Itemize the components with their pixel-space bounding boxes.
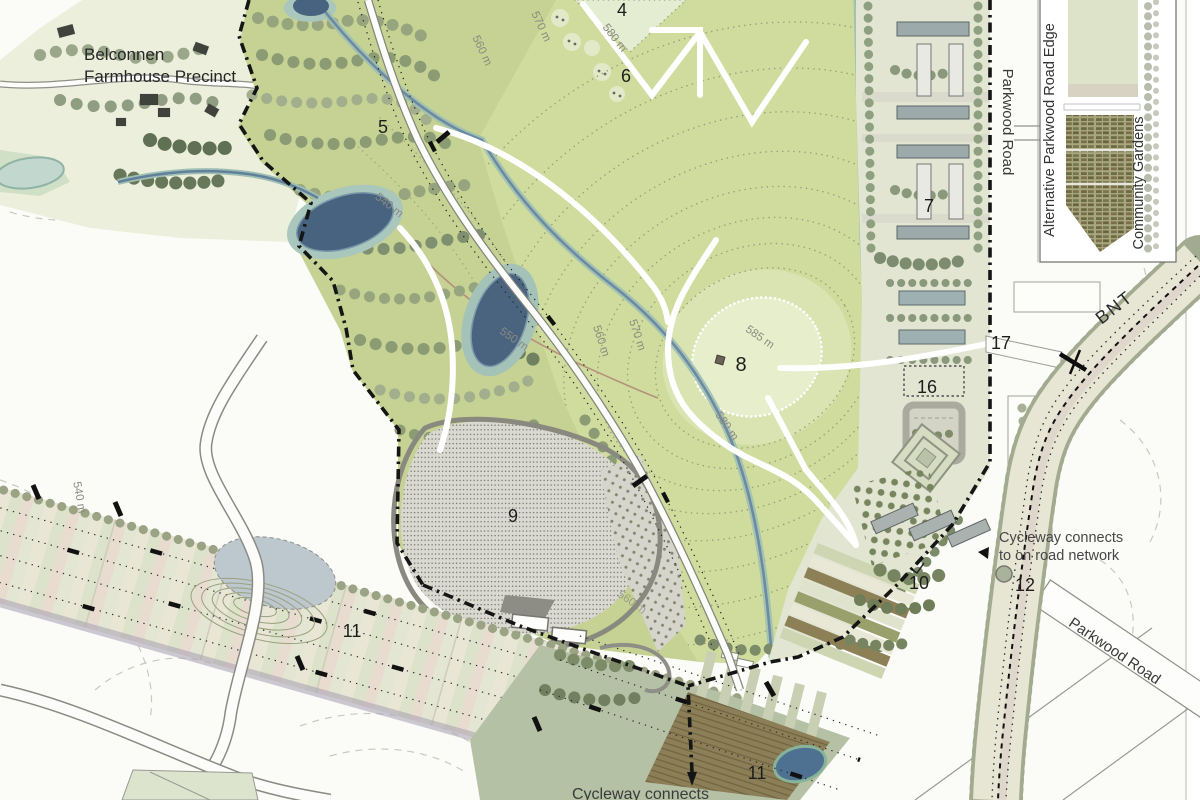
cycleway-note-line2: to on road network — [999, 548, 1120, 564]
trig-marker — [715, 355, 725, 365]
area-12-label: 12 — [1015, 575, 1035, 595]
cycleway-note-line1: Cycleway connects — [999, 530, 1123, 546]
area-11b-label: 11 — [748, 763, 767, 783]
legend-inset — [1040, 0, 1176, 262]
area-17-label: 17 — [991, 333, 1011, 353]
paddock-outline-1 — [1014, 282, 1100, 312]
masterplan-map: Belconnen Farmhouse Precinct 4 5 6 7 8 9… — [0, 0, 1200, 800]
node-12-marker — [996, 566, 1012, 582]
area-8-label: 8 — [735, 354, 746, 376]
area-4-label: 4 — [617, 0, 627, 20]
legend-community-gardens-label: Community Gardens — [1131, 117, 1147, 250]
parkwood-road-label-north: Parkwood Road — [999, 69, 1016, 176]
area-16-label: 16 — [917, 377, 937, 397]
cycleway-note-bottom: Cycleway connects — [572, 786, 709, 800]
area-10-label: 10 — [909, 573, 929, 593]
legend-alt-edge-label: Alternative Parkwood Road Edge — [1042, 23, 1058, 237]
map-canvas: Belconnen Farmhouse Precinct 4 5 6 7 8 9… — [0, 0, 1200, 800]
area-7-label: 7 — [924, 196, 934, 216]
green-wedge-field — [122, 770, 258, 800]
belconnen-label-line1: Belconnen — [84, 45, 164, 64]
area-9-label: 9 — [508, 506, 518, 526]
area-6-label: 6 — [621, 66, 631, 86]
belconnen-label-line2: Farmhouse Precinct — [84, 67, 236, 86]
legend-field — [1068, 0, 1138, 84]
area-11a-label: 11 — [343, 621, 362, 641]
area-5-label: 5 — [378, 117, 388, 137]
